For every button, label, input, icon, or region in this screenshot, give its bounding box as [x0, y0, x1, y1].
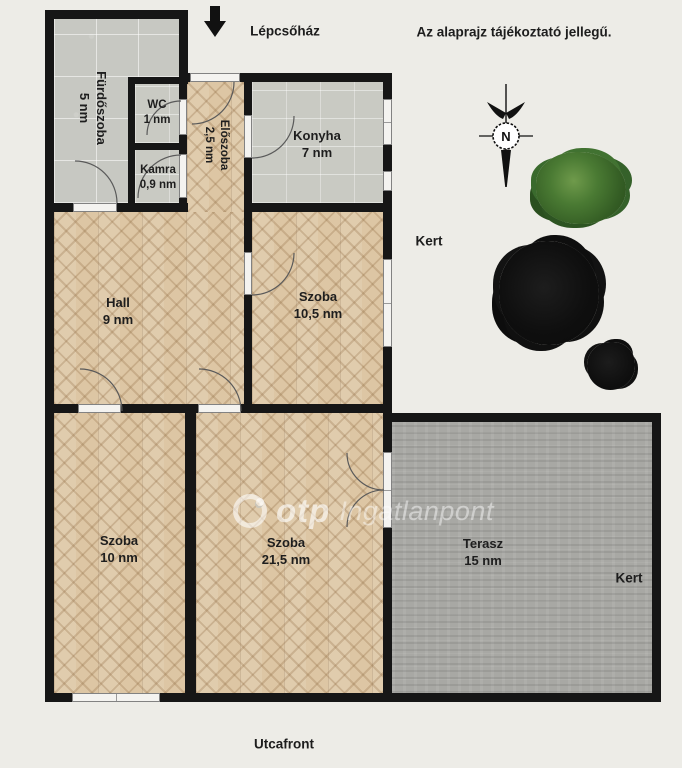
arrow-shaft	[210, 6, 220, 21]
tree-green	[536, 152, 626, 224]
garden-label-lower: Kert	[615, 571, 642, 586]
tree-dark-small	[587, 342, 635, 390]
floor-plan: Fürdőszoba 5 nm WC 1 nm Kamra 0,9 nm Elő…	[0, 0, 682, 768]
room-label-szoba-105: Szoba 10,5 nm	[294, 289, 342, 323]
room-label-furdoszoba: Fürdőszoba 5 nm	[75, 71, 109, 145]
wall-segment	[179, 10, 188, 82]
tree-dark-large	[499, 241, 599, 345]
floor-hall	[54, 212, 244, 404]
wall-segment	[383, 73, 392, 702]
room-label-kamra: Kamra 0,9 nm	[140, 163, 176, 193]
disclaimer-text: Az alaprajz tájékoztató jellegű.	[416, 25, 611, 40]
garden-label-upper: Kert	[415, 234, 442, 249]
kitchen-door	[244, 115, 252, 158]
wall-segment	[45, 10, 188, 19]
room-105-door	[244, 252, 252, 295]
staircase-label: Lépcsőház	[250, 24, 320, 39]
room-label-szoba-10: Szoba 10 nm	[100, 533, 138, 567]
wall-segment	[383, 693, 661, 702]
wall-segment	[128, 77, 135, 203]
bathroom-door	[73, 203, 117, 212]
room-215-door	[198, 404, 241, 413]
room-label-wc: WC 1 nm	[144, 98, 171, 128]
floor-terrace	[392, 422, 652, 693]
kitchen-window-1	[383, 99, 392, 145]
terrace-door	[383, 452, 392, 528]
arrow-head	[204, 21, 226, 37]
floor-bathroom-upper	[54, 19, 179, 77]
wall-segment	[128, 143, 186, 150]
street-front-label: Utcafront	[254, 737, 314, 752]
pantry-door	[179, 154, 187, 198]
room-10-window	[72, 693, 160, 702]
kitchen-window-2	[383, 171, 392, 191]
room-10-door	[78, 404, 121, 413]
entrance-door	[190, 73, 240, 82]
room-label-terasz: Terasz 15 nm	[463, 536, 503, 570]
compass-north-letter: N	[501, 129, 510, 144]
wall-segment	[185, 404, 196, 702]
room-label-hall: Hall 9 nm	[103, 295, 133, 329]
compass-icon: N	[476, 80, 536, 192]
room-label-szoba-215: Szoba 21,5 nm	[262, 535, 310, 569]
wall-segment	[652, 413, 661, 702]
wall-segment	[244, 203, 392, 212]
wall-segment	[45, 10, 54, 702]
wc-door	[179, 99, 187, 135]
room-105-window	[383, 259, 392, 347]
wall-segment	[383, 413, 661, 422]
room-label-konyha: Konyha 7 nm	[293, 128, 341, 162]
room-label-eloszoba: Előszoba 2,5 nm	[201, 120, 231, 170]
staircase-arrow-icon	[204, 6, 226, 38]
